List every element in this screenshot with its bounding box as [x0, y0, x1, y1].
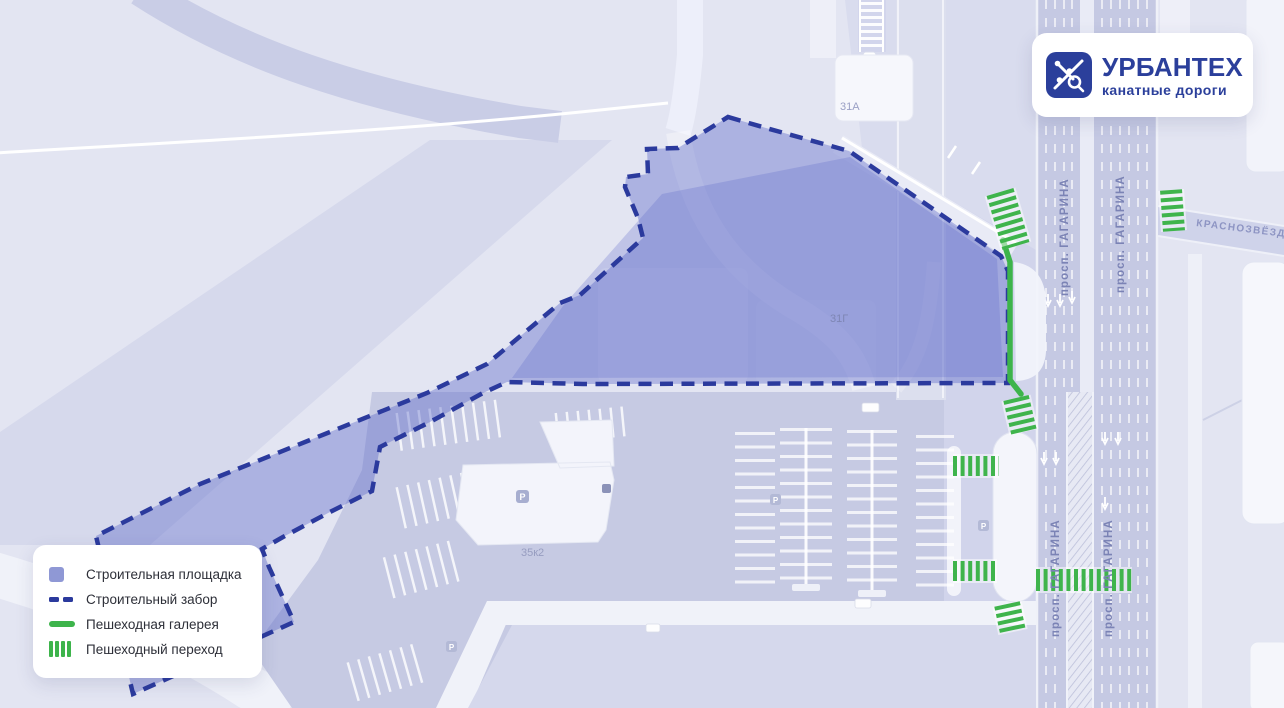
legend-label: Строительный забор — [86, 592, 217, 607]
building-label-31a: 31А — [840, 101, 860, 113]
street-label-gagarina: просп. ГАГАРИНА — [1103, 519, 1115, 637]
construction-fence-swatch — [49, 597, 76, 602]
logo-card: УРБАНТЕХ канатные дороги — [1032, 33, 1253, 117]
logo-text: УРБАНТЕХ канатные дороги — [1102, 54, 1243, 97]
street-label-gagarina: просп. ГАГАРИНА — [1115, 175, 1127, 293]
pedestrian-gallery-swatch — [49, 621, 76, 627]
entrance-marker — [602, 484, 611, 493]
street-label-gagarina: просп. ГАГАРИНА — [1050, 519, 1062, 637]
urbantech-logo-icon — [1046, 52, 1092, 98]
parking-icon: P — [981, 522, 987, 531]
building-label-35k2: 35к2 — [521, 547, 544, 559]
stairs — [858, 0, 886, 52]
sidewalk-strip — [810, 0, 836, 58]
parking-road — [500, 601, 1036, 625]
legend-label: Пешеходный переход — [86, 642, 223, 657]
map-view: P P P P 31А 31Г 35к2 просп. ГАГАРИНА про… — [0, 0, 1284, 708]
pedestrian-crossing-swatch — [49, 641, 76, 657]
legend-label: Строительная площадка — [86, 567, 242, 582]
legend-label: Пешеходная галерея — [86, 617, 219, 632]
logo-subtitle: канатные дороги — [1102, 83, 1243, 97]
median-hatched — [1066, 392, 1094, 708]
legend-item-construction-fence: Строительный забор — [49, 590, 242, 608]
road-under-site — [678, 0, 690, 132]
pedestrian-island — [993, 432, 1037, 602]
building-label-31g: 31Г — [830, 313, 848, 325]
building — [1250, 642, 1284, 708]
legend-item-pedestrian-gallery: Пешеходная галерея — [49, 615, 242, 633]
legend-item-pedestrian-crossing: Пешеходный переход — [49, 640, 242, 658]
parking-icon: P — [519, 492, 525, 502]
parking-icon: P — [449, 643, 455, 652]
legend-card: Строительная площадка Строительный забор… — [33, 545, 262, 678]
parking-lot-south — [468, 625, 1036, 708]
parking-icon: P — [773, 496, 779, 505]
logo-title: УРБАНТЕХ — [1102, 54, 1243, 80]
building — [1242, 262, 1284, 524]
side-street — [1188, 254, 1202, 708]
legend-item-construction-area: Строительная площадка — [49, 565, 242, 583]
street-label-gagarina: просп. ГАГАРИНА — [1059, 178, 1071, 296]
construction-area-swatch — [49, 567, 76, 582]
